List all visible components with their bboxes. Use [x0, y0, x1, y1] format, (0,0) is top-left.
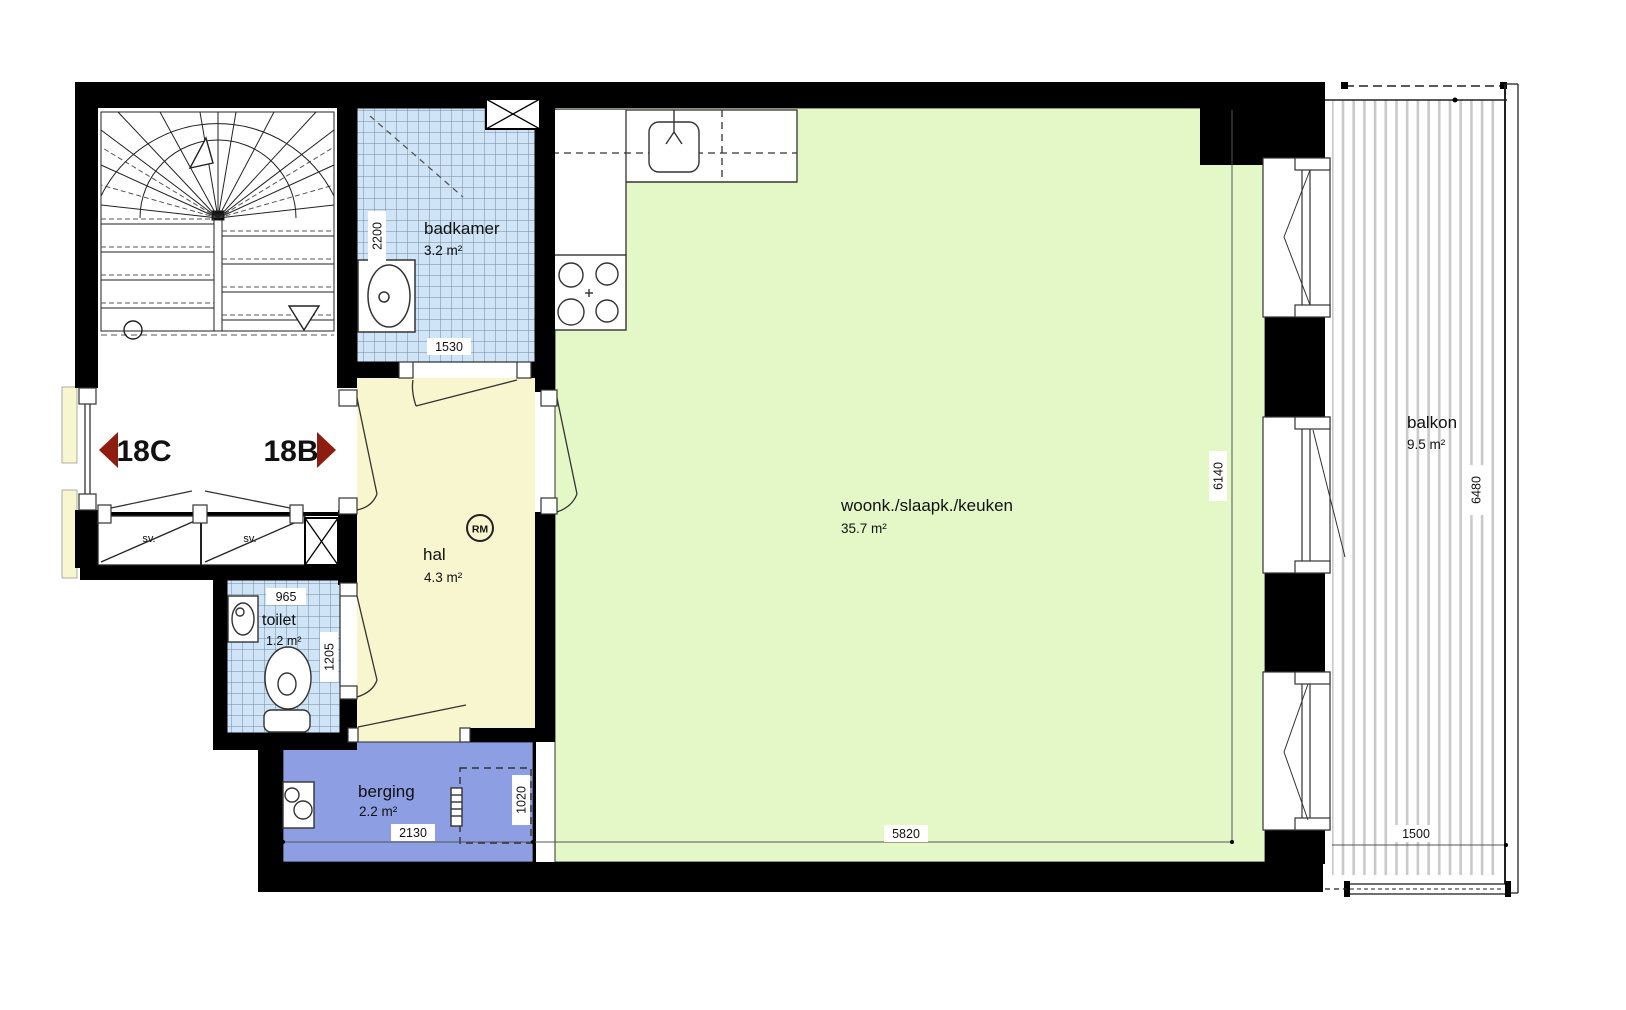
toilet-basin-icon [228, 596, 258, 642]
dim-living-depth: 6140 [1212, 462, 1226, 490]
label-unit-18b: 18B [263, 435, 318, 468]
room-berging [283, 742, 533, 862]
label-living: woonk./slaapk./keuken [840, 496, 1013, 515]
room-hal [357, 378, 535, 742]
stair-down-arrow-icon [289, 306, 319, 330]
floor-plan-canvas: RM [0, 0, 1626, 1010]
stair-start-marker [124, 321, 142, 339]
label-badkamer: badkamer [424, 219, 500, 238]
unit-arrow-left-icon [99, 432, 118, 468]
badkamer-basin-icon [358, 260, 415, 332]
unit-labels: 18C 18B [99, 432, 336, 468]
dim-berging-depth: 1020 [515, 786, 529, 814]
label-living-area: 35.7 m² [841, 521, 887, 536]
unit-arrow-right-icon [317, 432, 336, 468]
label-berging: berging [358, 782, 415, 801]
label-sv-right: sv. [243, 533, 256, 545]
floor-plan: RM [0, 0, 1626, 1010]
neighbor-strip [62, 387, 77, 463]
neighbor-strip [62, 490, 77, 578]
shaft-icon [305, 518, 338, 565]
staircase [101, 112, 334, 339]
label-hal-area: 4.3 m² [424, 570, 463, 585]
dim-badkamer-width: 1530 [435, 340, 463, 354]
label-badkamer-area: 3.2 m² [424, 243, 463, 258]
dim-toilet-depth: 1205 [323, 643, 337, 671]
label-sv-left: sv. [142, 533, 155, 545]
vent-shaft-icon [486, 99, 540, 129]
wc-icon [264, 647, 311, 732]
label-berging-area: 2.2 m² [359, 804, 398, 819]
svg-text:RM: RM [472, 524, 489, 536]
label-balkon: balkon [1407, 413, 1457, 432]
cooktop-icon [552, 255, 626, 330]
dim-toilet-width: 965 [276, 590, 297, 604]
label-toilet: toilet [262, 612, 296, 629]
label-unit-18c: 18C [116, 435, 171, 468]
dim-berging-width: 2130 [399, 826, 427, 840]
label-hal: hal [423, 545, 446, 564]
berging-sink-icon [283, 782, 314, 828]
dim-living-width: 5820 [892, 827, 920, 841]
dim-badkamer-depth: 2200 [371, 222, 385, 250]
label-toilet-area: 1.2 m² [266, 634, 301, 648]
room-living [555, 108, 1265, 862]
dim-balkon-width: 1500 [1402, 827, 1430, 841]
label-balkon-area: 9.5 m² [1407, 437, 1446, 452]
dim-balkon-depth: 6480 [1470, 476, 1484, 504]
stair-up-arrow-icon [190, 138, 213, 168]
